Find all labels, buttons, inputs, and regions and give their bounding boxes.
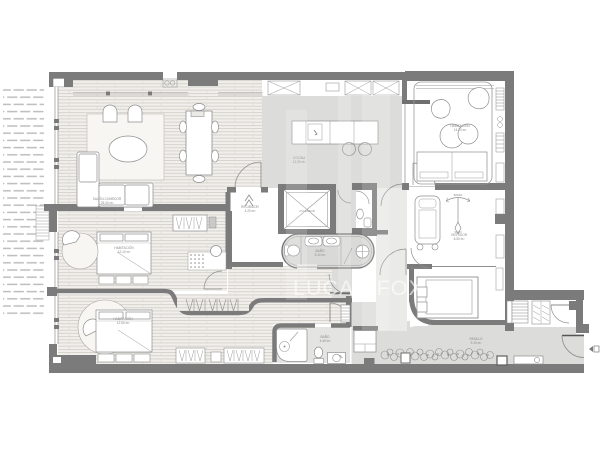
svg-text:8.50 m²: 8.50 m² (454, 237, 465, 241)
svg-text:5.10 m²: 5.10 m² (315, 253, 326, 257)
svg-text:4.20 m²: 4.20 m² (245, 209, 256, 213)
svg-text:12.10 m²: 12.10 m² (118, 250, 131, 254)
svg-text:4.40 m²: 4.40 m² (320, 339, 331, 343)
svg-text:BARRA: BARRA (454, 194, 463, 197)
svg-text:9.10 m²: 9.10 m² (471, 341, 482, 345)
svg-text:LUCAS FOX: LUCAS FOX (293, 276, 424, 300)
svg-text:25.40 m²: 25.40 m² (101, 201, 114, 205)
svg-text:14.20 m²: 14.20 m² (454, 128, 467, 132)
svg-text:12.60 m²: 12.60 m² (117, 321, 130, 325)
